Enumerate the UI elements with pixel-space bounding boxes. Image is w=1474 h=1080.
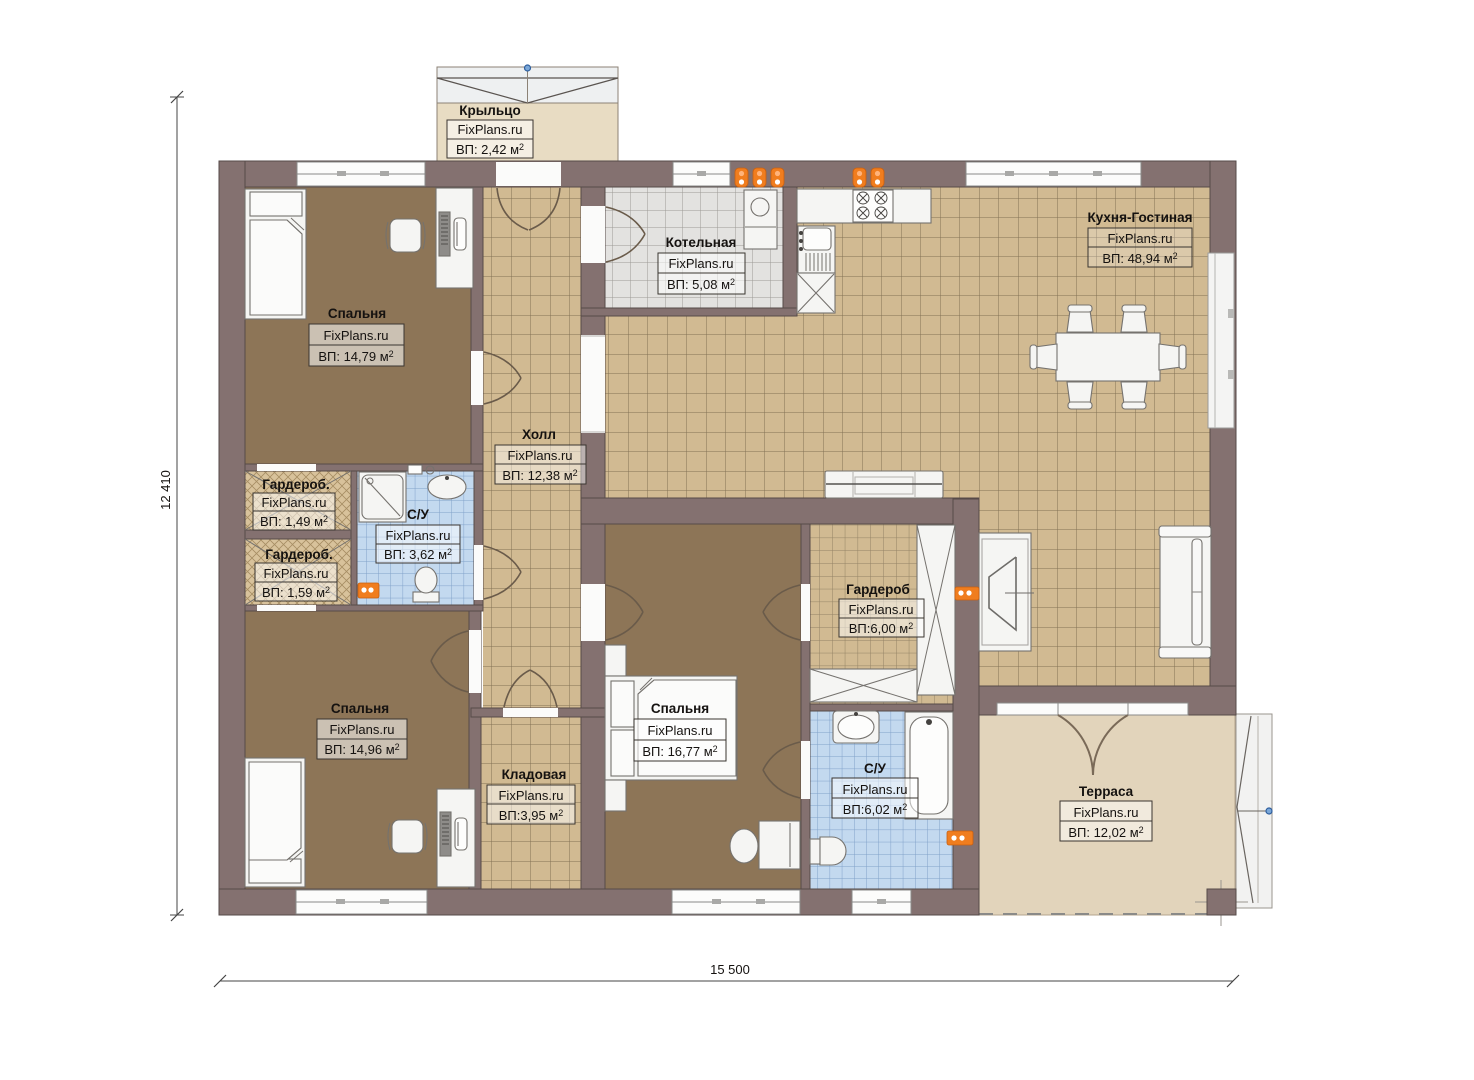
svg-text:ВП:6,00 м2: ВП:6,00 м2 (849, 621, 914, 636)
svg-text:Гардероб: Гардероб (846, 582, 910, 597)
svg-text:ВП: 1,49 м2: ВП: 1,49 м2 (260, 514, 328, 529)
svg-text:FixPlans.ru: FixPlans.ru (647, 723, 712, 738)
svg-text:ВП: 3,62 м2: ВП: 3,62 м2 (384, 547, 452, 562)
svg-text:Спальня: Спальня (331, 701, 389, 716)
svg-text:Кухня-Гостиная: Кухня-Гостиная (1088, 210, 1193, 225)
svg-text:Холл: Холл (522, 427, 556, 442)
svg-text:FixPlans.ru: FixPlans.ru (329, 722, 394, 737)
svg-text:Гардероб.: Гардероб. (265, 547, 333, 562)
svg-text:ВП:6,02 м2: ВП:6,02 м2 (843, 802, 908, 817)
svg-text:С/У: С/У (864, 761, 887, 776)
svg-text:12 410: 12 410 (158, 470, 173, 510)
svg-text:ВП: 12,38 м2: ВП: 12,38 м2 (502, 468, 577, 483)
svg-text:15 500: 15 500 (710, 962, 750, 977)
svg-text:FixPlans.ru: FixPlans.ru (323, 328, 388, 343)
svg-text:Терраса: Терраса (1079, 784, 1134, 799)
svg-text:ВП:3,95 м2: ВП:3,95 м2 (499, 808, 564, 823)
svg-text:ВП: 48,94 м2: ВП: 48,94 м2 (1102, 251, 1177, 266)
svg-text:ВП: 14,96 м2: ВП: 14,96 м2 (324, 742, 399, 757)
svg-text:FixPlans.ru: FixPlans.ru (668, 256, 733, 271)
svg-text:Котельная: Котельная (666, 235, 737, 250)
svg-text:ВП: 1,59 м2: ВП: 1,59 м2 (262, 585, 330, 600)
svg-text:FixPlans.ru: FixPlans.ru (498, 788, 563, 803)
svg-text:Спальня: Спальня (328, 306, 386, 321)
svg-text:Гардероб.: Гардероб. (262, 477, 330, 492)
svg-text:FixPlans.ru: FixPlans.ru (385, 528, 450, 543)
svg-text:Крыльцо: Крыльцо (459, 103, 520, 118)
svg-text:Спальня: Спальня (651, 701, 709, 716)
svg-text:FixPlans.ru: FixPlans.ru (1073, 805, 1138, 820)
svg-text:С/У: С/У (407, 507, 430, 522)
svg-text:FixPlans.ru: FixPlans.ru (261, 495, 326, 510)
svg-text:FixPlans.ru: FixPlans.ru (457, 122, 522, 137)
svg-text:FixPlans.ru: FixPlans.ru (263, 566, 328, 581)
svg-text:ВП: 16,77 м2: ВП: 16,77 м2 (642, 744, 717, 759)
svg-text:Кладовая: Кладовая (502, 767, 567, 782)
svg-text:FixPlans.ru: FixPlans.ru (507, 448, 572, 463)
svg-text:ВП: 2,42 м2: ВП: 2,42 м2 (456, 142, 524, 157)
svg-text:FixPlans.ru: FixPlans.ru (848, 602, 913, 617)
svg-text:ВП: 14,79 м2: ВП: 14,79 м2 (318, 349, 393, 364)
svg-text:FixPlans.ru: FixPlans.ru (842, 782, 907, 797)
svg-text:ВП: 5,08 м2: ВП: 5,08 м2 (667, 277, 735, 292)
svg-text:FixPlans.ru: FixPlans.ru (1107, 231, 1172, 246)
svg-text:ВП: 12,02 м2: ВП: 12,02 м2 (1068, 825, 1143, 840)
